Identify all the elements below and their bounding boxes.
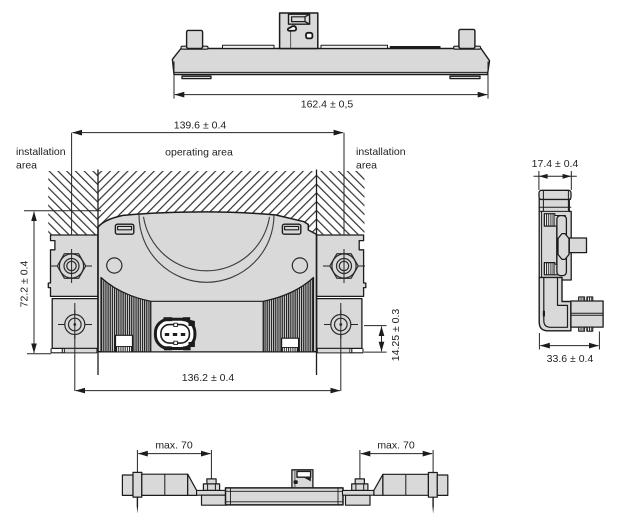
svg-text:operating area: operating area — [165, 147, 233, 159]
svg-text:33.6 ± 0.4: 33.6 ± 0.4 — [547, 353, 594, 365]
svg-text:installation: installation — [16, 146, 66, 158]
svg-text:14.25 ± 0.3: 14.25 ± 0.3 — [390, 309, 402, 362]
svg-text:max. 70: max. 70 — [377, 440, 415, 452]
svg-text:installation: installation — [356, 146, 406, 158]
svg-text:max. 70: max. 70 — [155, 440, 193, 452]
svg-text:72.2 ± 0.4: 72.2 ± 0.4 — [19, 261, 31, 308]
svg-text:136.2 ± 0.4: 136.2 ± 0.4 — [182, 372, 235, 384]
svg-text:17.4 ± 0.4: 17.4 ± 0.4 — [532, 158, 579, 170]
svg-text:162.4 ± 0,5: 162.4 ± 0,5 — [301, 99, 354, 111]
svg-text:area: area — [16, 159, 37, 171]
svg-text:area: area — [356, 159, 377, 171]
svg-text:139.6 ± 0.4: 139.6 ± 0.4 — [174, 119, 227, 131]
